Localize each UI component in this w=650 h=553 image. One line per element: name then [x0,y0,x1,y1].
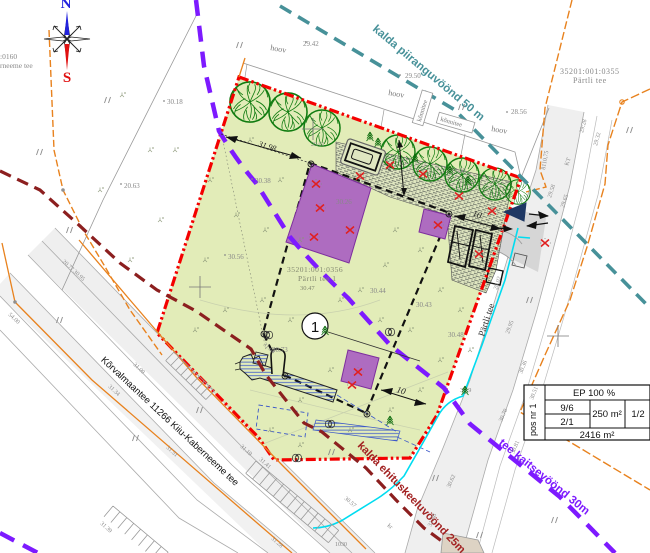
svg-text:S: S [63,70,71,86]
svg-text:20.63: 20.63 [124,182,140,190]
svg-text:35201:001:0356: 35201:001:0356 [287,265,343,274]
svg-text:28.56: 28.56 [511,108,527,116]
svg-text:1.30: 1.30 [455,168,466,174]
svg-text:29.42: 29.42 [303,40,319,48]
svg-text:29.01: 29.01 [311,142,325,148]
svg-text:9/6: 9/6 [560,403,573,414]
svg-text:30.43: 30.43 [416,301,432,309]
svg-text:30.47: 30.47 [300,285,315,292]
svg-text:Pärtli tee: Pärtli tee [573,76,607,85]
svg-text:1/2: 1/2 [631,409,644,420]
svg-text:30.44: 30.44 [370,287,386,295]
svg-text:2/1: 2/1 [560,417,573,428]
svg-text:rneeme tee: rneeme tee [0,61,33,70]
svg-text:30.56: 30.56 [228,253,244,261]
svg-text:30.48: 30.48 [448,331,464,339]
svg-text:30.26: 30.26 [336,198,352,206]
svg-text:35201:001:0355: 35201:001:0355 [560,67,619,76]
svg-text:39.9: 39.9 [460,387,471,394]
svg-text::0160: :0160 [0,52,17,61]
svg-text:250 m²: 250 m² [592,409,622,420]
svg-text:29.50: 29.50 [405,72,421,80]
svg-text:EP 100 %: EP 100 % [573,388,616,399]
svg-text:30.38: 30.38 [255,177,271,185]
svg-text:30.18: 30.18 [167,98,183,106]
svg-text:N: N [61,0,72,12]
svg-text:2416 m²: 2416 m² [580,430,615,441]
svg-text:1030: 1030 [335,542,347,548]
svg-text:1: 1 [311,319,319,336]
svg-text:pos nr 1: pos nr 1 [528,403,538,436]
svg-text:Pärtli tee 1: Pärtli tee 1 [298,274,337,283]
